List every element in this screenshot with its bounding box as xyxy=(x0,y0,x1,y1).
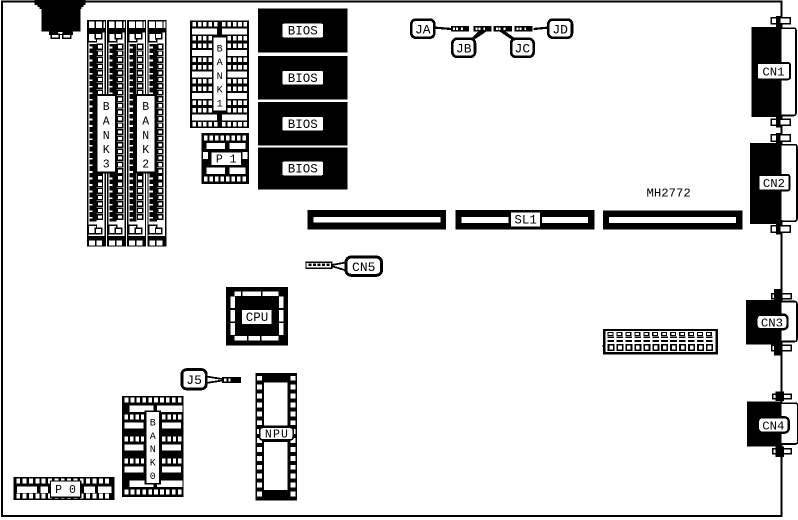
svg-text:A: A xyxy=(150,432,156,443)
svg-text:JA: JA xyxy=(415,22,431,37)
svg-text:B: B xyxy=(217,44,223,55)
svg-text:B: B xyxy=(103,101,110,114)
svg-text:A: A xyxy=(103,115,110,128)
svg-text:B: B xyxy=(142,101,149,114)
svg-text:CN3: CN3 xyxy=(761,316,783,330)
svg-text:A: A xyxy=(142,115,149,128)
svg-text:CN4: CN4 xyxy=(762,419,784,433)
svg-text:JB: JB xyxy=(456,41,472,56)
svg-text:A: A xyxy=(217,58,223,69)
svg-text:B: B xyxy=(150,419,156,430)
svg-text:P 1: P 1 xyxy=(216,154,237,167)
svg-text:BIOS: BIOS xyxy=(288,163,318,177)
svg-text:K: K xyxy=(103,144,110,157)
svg-text:K: K xyxy=(150,458,156,469)
svg-text:K: K xyxy=(217,86,223,97)
svg-text:CPU: CPU xyxy=(246,311,269,325)
svg-text:K: K xyxy=(142,144,149,157)
svg-text:N: N xyxy=(103,130,110,143)
svg-text:SL1: SL1 xyxy=(514,214,537,228)
svg-text:JC: JC xyxy=(515,41,531,56)
svg-text:N: N xyxy=(217,72,223,83)
svg-text:BIOS: BIOS xyxy=(288,72,318,86)
svg-text:MH2772: MH2772 xyxy=(647,186,691,200)
svg-text:3: 3 xyxy=(103,158,110,171)
svg-text:2: 2 xyxy=(142,158,149,171)
svg-text:BIOS: BIOS xyxy=(288,118,318,132)
svg-text:NPU: NPU xyxy=(265,428,288,441)
svg-text:N: N xyxy=(150,445,156,456)
svg-text:CN2: CN2 xyxy=(763,177,785,191)
svg-text:J5: J5 xyxy=(186,373,202,388)
svg-text:BIOS: BIOS xyxy=(288,25,318,39)
svg-text:JD: JD xyxy=(552,22,568,37)
svg-text:N: N xyxy=(142,130,149,143)
svg-text:P 0: P 0 xyxy=(55,484,76,497)
svg-text:0: 0 xyxy=(150,472,156,483)
svg-text:1: 1 xyxy=(217,99,223,110)
svg-text:CN1: CN1 xyxy=(762,66,784,80)
svg-text:CN5: CN5 xyxy=(352,260,375,275)
